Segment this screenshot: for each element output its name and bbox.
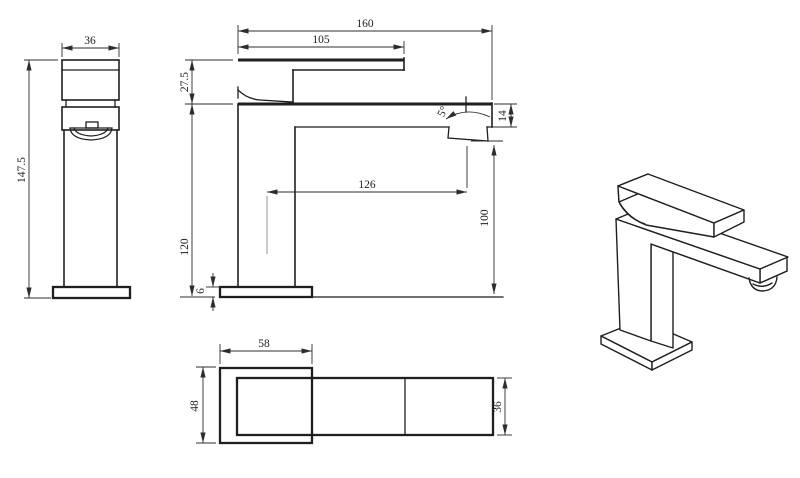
plan-spout-body: [237, 378, 493, 435]
side-view: 160 105 27.5 120 6 126 100: [179, 18, 517, 311]
side-base-plate: [220, 287, 312, 297]
dim-spout-reach: 126: [358, 179, 376, 191]
side-dimensions: 160 105 27.5 120 6 126 100: [179, 18, 517, 311]
persp-aerator-inner: [753, 283, 772, 286]
dim-front-handle-width: 36: [84, 35, 96, 47]
dim-body-height: 120: [179, 238, 191, 256]
dim-outlet-height: 100: [479, 209, 491, 227]
dim-handle-length: 105: [312, 34, 330, 46]
drawing-canvas: 36 147.5: [0, 0, 800, 478]
dim-base-width: 48: [189, 400, 201, 412]
dim-base-thickness: 6: [195, 288, 207, 294]
dim-base-length: 58: [258, 338, 270, 350]
front-view: 36 147.5: [16, 35, 130, 298]
dim-front-total-height: 147.5: [16, 157, 28, 183]
side-faucet-outline: [220, 58, 503, 297]
dim-aerator-angle: 5°: [436, 104, 451, 119]
front-spout-block: [62, 107, 119, 130]
dim-total-length: 160: [356, 18, 374, 30]
persp-body-right-face: [651, 242, 673, 348]
front-faucet-outline: [53, 60, 130, 298]
angle-arc: [446, 112, 490, 119]
plan-view: 58 48 36: [189, 338, 512, 443]
dim-spout-end-height: 14: [497, 110, 509, 122]
dim-handle-height: 27.5: [179, 72, 191, 92]
front-base-plate: [53, 287, 130, 298]
front-handle: [62, 60, 119, 100]
side-handle-neck: [238, 90, 292, 102]
technical-drawing-sheet: 36 147.5: [0, 0, 800, 478]
plan-outline: [220, 368, 493, 443]
side-aerator: [448, 127, 488, 141]
front-dimensions: 36 147.5: [16, 35, 119, 298]
front-aerator: [70, 122, 112, 140]
perspective-view: [601, 174, 788, 370]
plan-base-plate: [220, 368, 312, 443]
dim-spout-width: 36: [492, 401, 504, 413]
